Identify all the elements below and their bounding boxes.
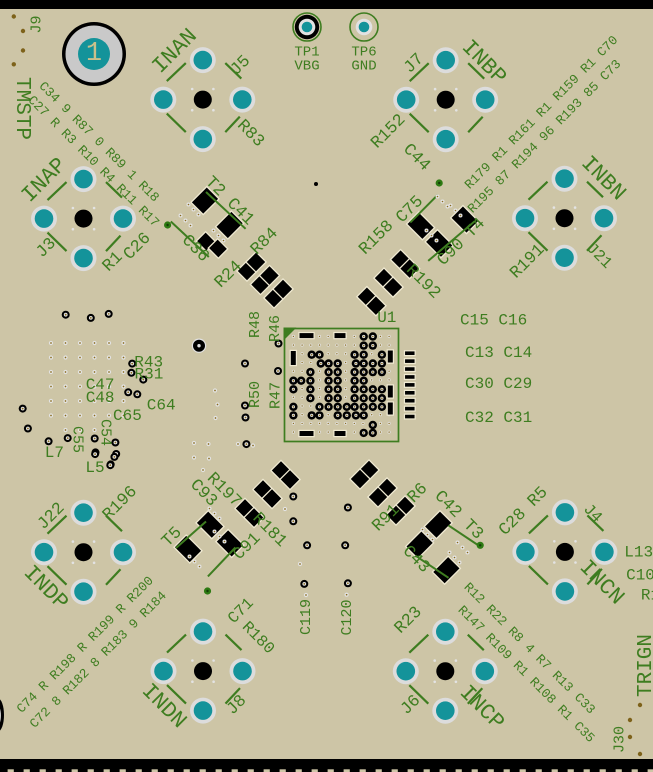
svg-text:L5: L5 — [85, 459, 104, 477]
svg-text:C55: C55 — [69, 426, 86, 453]
svg-text:R1: R1 — [641, 587, 653, 605]
svg-text:C64: C64 — [147, 396, 176, 414]
svg-text:R31: R31 — [134, 366, 163, 384]
svg-text:TMSTP: TMSTP — [10, 77, 33, 140]
svg-text:R50: R50 — [247, 381, 264, 408]
svg-text:L13: L13 — [624, 544, 653, 562]
svg-text:C65: C65 — [113, 407, 142, 425]
svg-text:1: 1 — [86, 39, 102, 69]
svg-text:R48: R48 — [247, 311, 264, 338]
svg-text:L7: L7 — [45, 444, 64, 462]
svg-text:R46: R46 — [267, 315, 284, 342]
svg-text:U1: U1 — [377, 309, 396, 327]
svg-text:C15 C16: C15 C16 — [460, 312, 527, 330]
svg-text:C13 C14: C13 C14 — [465, 344, 532, 362]
svg-text:GND: GND — [351, 59, 376, 75]
svg-text:C54: C54 — [97, 419, 114, 446]
svg-text:C48: C48 — [86, 389, 115, 407]
svg-text:VBG: VBG — [294, 59, 319, 75]
svg-text:C119: C119 — [298, 599, 315, 635]
svg-text:C32 C31: C32 C31 — [465, 409, 532, 427]
svg-text:TRIGN: TRIGN — [635, 634, 653, 697]
svg-text:R47: R47 — [268, 382, 285, 409]
svg-text:C10: C10 — [626, 566, 653, 584]
svg-text:J9: J9 — [29, 15, 46, 33]
svg-text:J30: J30 — [612, 726, 629, 753]
svg-text:C120: C120 — [339, 599, 356, 635]
svg-text:C30 C29: C30 C29 — [465, 375, 532, 393]
